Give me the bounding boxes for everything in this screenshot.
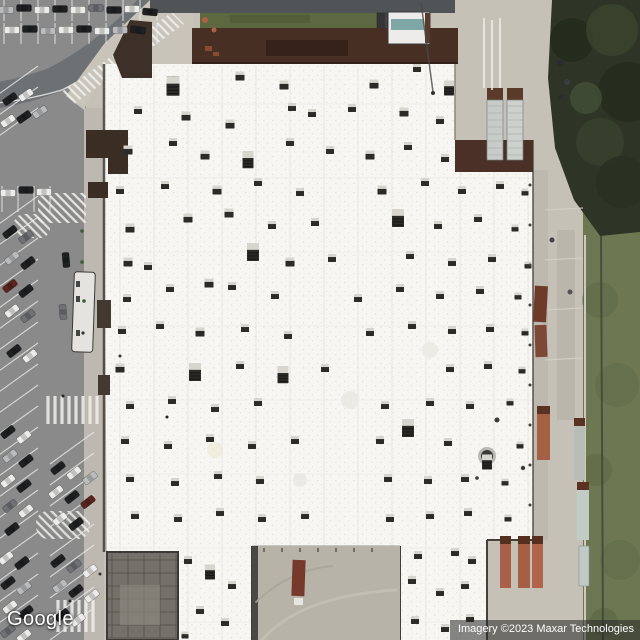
loading-notch bbox=[252, 546, 400, 640]
imagery-attribution: Imagery ©2023 Maxar Technologies bbox=[450, 620, 640, 640]
google-logo[interactable]: Google bbox=[7, 608, 74, 631]
garden-yard bbox=[107, 552, 178, 640]
satellite-imagery bbox=[0, 0, 640, 640]
map-canvas[interactable]: Google Imagery ©2023 Maxar Technologies bbox=[0, 0, 640, 640]
vehicle-rv bbox=[72, 272, 96, 353]
